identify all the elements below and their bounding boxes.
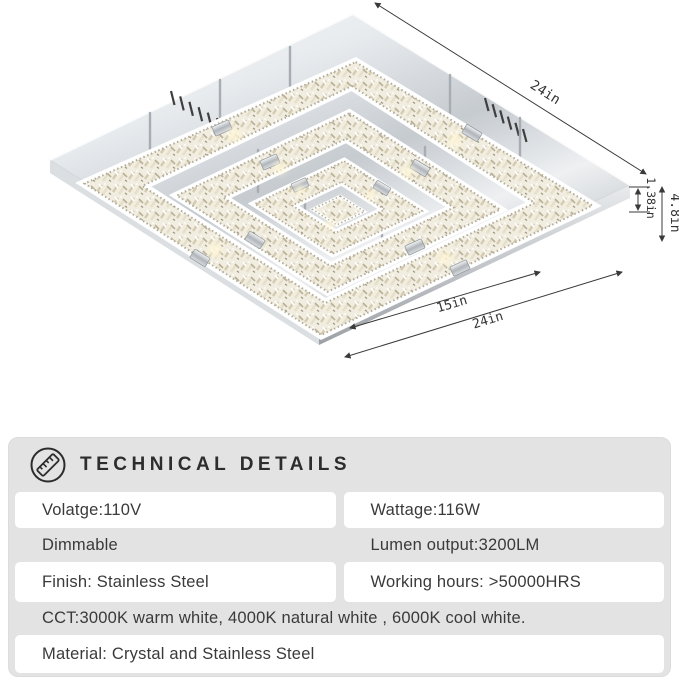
product-diagram: 24in 1.38in 4.8in 15in 24in — [0, 0, 679, 437]
spec-row-4: CCT:3000K warm white, 4000K natural whit… — [15, 602, 664, 635]
product-page: 24in 1.38in 4.8in 15in 24in TECHNICAL DE… — [0, 0, 679, 683]
dim-label-top-24in: 24in — [527, 77, 563, 108]
dim-label-bottom-24in: 24in — [471, 309, 505, 332]
spec-lumen-output: Lumen output:3200LM — [344, 528, 665, 562]
spec-finish: Finish: Stainless Steel — [15, 562, 336, 602]
technical-details-panel: TECHNICAL DETAILS Volatge:110V Wattage:1… — [8, 437, 671, 677]
panel-title: TECHNICAL DETAILS — [80, 454, 351, 476]
ruler-icon — [29, 446, 67, 484]
spec-row-3: Finish: Stainless Steel Working hours: >… — [15, 562, 664, 602]
panel-header: TECHNICAL DETAILS — [9, 438, 670, 492]
spec-material: Material: Crystal and Stainless Steel — [15, 635, 664, 673]
spec-cct: CCT:3000K warm white, 4000K natural whit… — [15, 602, 664, 635]
dim-label-15in: 15in — [435, 293, 469, 316]
spec-wattage: Wattage:116W — [344, 492, 665, 528]
spec-working-hours: Working hours: >50000HRS — [344, 562, 665, 602]
dim-label-height: 4.8in — [667, 193, 679, 232]
spec-voltage: Volatge:110V — [15, 492, 336, 528]
spec-row-5: Material: Crystal and Stainless Steel — [15, 635, 664, 673]
spec-row-2: Dimmable Lumen output:3200LM — [15, 528, 664, 562]
dim-label-thickness: 1.38in — [644, 177, 658, 219]
spec-row-1: Volatge:110V Wattage:116W — [15, 492, 664, 528]
spec-dimmable: Dimmable — [15, 528, 336, 562]
